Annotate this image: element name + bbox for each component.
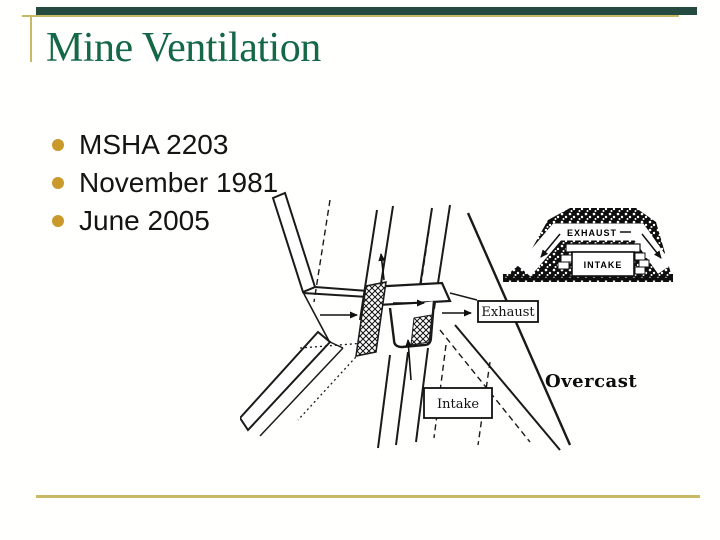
inset-intake-label: INTAKE: [584, 260, 623, 270]
slide-canvas: { "slide": { "title": "Mine Ventilation"…: [0, 0, 720, 540]
overcast-cross-section-inset: EXHAUST INTAKE: [503, 208, 673, 282]
bullet-text: MSHA 2203: [79, 129, 228, 161]
lintel: [566, 244, 640, 252]
overcast-box: [356, 282, 450, 356]
intake-label: Intake: [437, 397, 479, 412]
intake-label-box: Intake: [424, 388, 492, 418]
exhaust-label-box: Exhaust: [478, 301, 538, 322]
header-accent-bar: [36, 7, 697, 15]
bullet-icon: [52, 139, 64, 151]
slide-title: Mine Ventilation: [46, 24, 321, 72]
exhaust-label: Exhaust: [481, 305, 535, 320]
header-gold-rule: [22, 15, 679, 17]
bullet-text: June 2005: [79, 205, 210, 237]
overcast-caption: Overcast: [545, 371, 637, 392]
bullet-icon: [52, 177, 64, 189]
title-gold-tick: [30, 15, 32, 62]
footer-gold-rule: [36, 495, 700, 498]
portal-hatch: [411, 315, 432, 345]
inset-exhaust-label: EXHAUST: [567, 228, 617, 238]
list-item: MSHA 2203: [46, 129, 278, 160]
overcast-diagram: Exhaust Intake Overcast EXHAUST INTAKE: [240, 180, 700, 480]
bullet-icon: [52, 215, 64, 227]
